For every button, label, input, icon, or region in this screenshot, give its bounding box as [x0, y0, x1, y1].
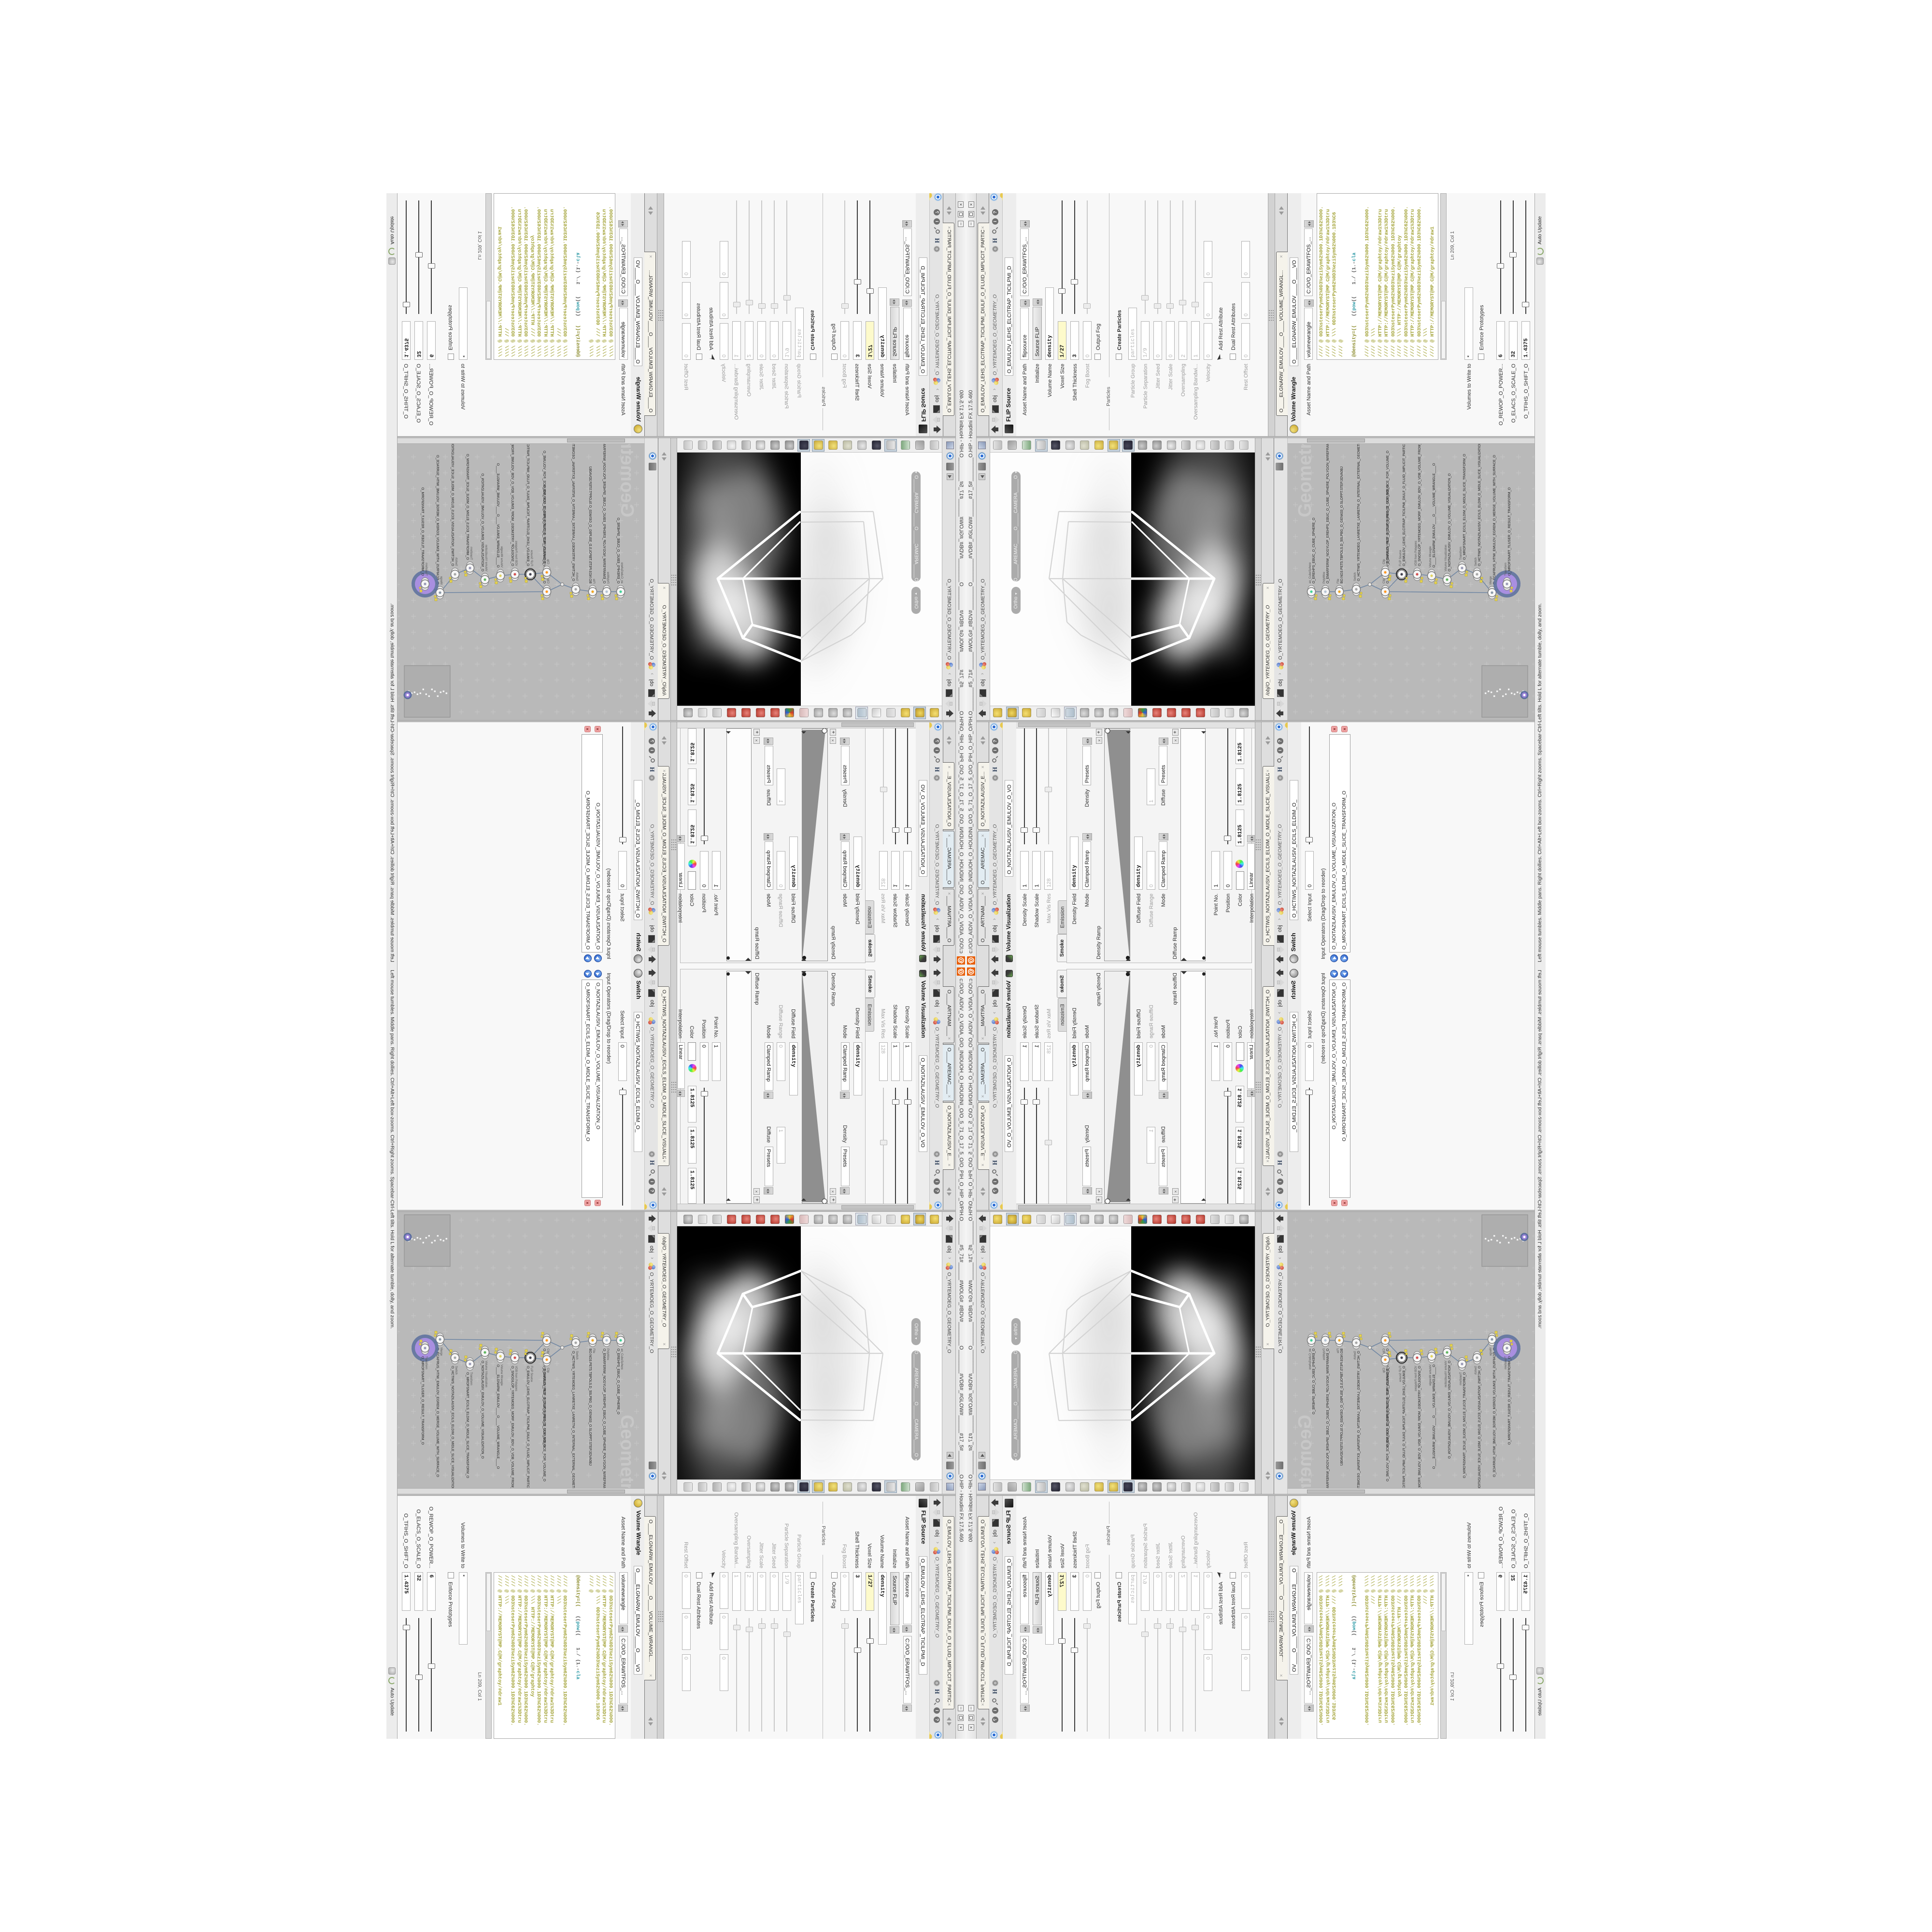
- svg-text:Volume Visualization: Volume Visualization: [484, 545, 487, 571]
- svg-text:Switch: Switch: [1354, 572, 1357, 581]
- svg-text:BO.NO3.PET5.TBPOLS.D_50LPBG_O_: BO.NO3.PET5.TBPOLS.D_50LPBG_O_GEN433_O.S…: [1340, 467, 1344, 583]
- svg-text:O____ELGNARW_EMULOV____O____VO: O____ELGNARW_EMULOV____O____VOLUME_WRANG…: [1433, 463, 1436, 568]
- svg-text:Geometry: Geometry: [617, 438, 637, 517]
- svg-text:O_HCTIWS_NOITAZILAUSIV_ECILS_E: O_HCTIWS_NOITAZILAUSIV_ECILS_ELDIM_O_MID…: [1478, 438, 1481, 566]
- svg-text:Volume Visualization: Volume Visualization: [1445, 1361, 1448, 1387]
- svg-text:FLIP Source: FLIP Source: [530, 550, 533, 566]
- svg-text:O_EMARFERIW_NOGYLOP_EREHPS_EBU: O_EMARFERIW_NOGYLOP_EREHPS_EBUC_O_CUBE_S…: [602, 438, 606, 583]
- svg-text:O_SNOGILOP_YRTEMOEG_MORF_EMULO: O_SNOGILOP_YRTEMOEG_MORF_EMULOV_BDV_O_VD…: [511, 1366, 514, 1494]
- svg-text:O_ECAFRUS_HTIW_EMULOV_EGREM_O_: O_ECAFRUS_HTIW_EMULOV_EGREM_O_MERGE_VOLU…: [1493, 1348, 1496, 1477]
- svg-text:an_CubeSphere: an_CubeSphere: [620, 1349, 623, 1370]
- svg-text:O_MROFSNART_TLUSER_O_RESULT_TR: O_MROFSNART_TLUSER_O_RESULT_TRANSFORM_O: [421, 487, 424, 576]
- svg-text:Geometry: Geometry: [1295, 438, 1315, 517]
- svg-text:Volume Visualization: Volume Visualization: [1445, 545, 1448, 571]
- svg-text:Clip: Clip: [1383, 1368, 1386, 1373]
- svg-text:PolyWire: PolyWire: [606, 1349, 609, 1361]
- svg-text:Merge: Merge: [1490, 1348, 1492, 1356]
- svg-text:PolyWire: PolyWire: [1323, 1349, 1326, 1361]
- svg-text:FLIP Source: FLIP Source: [1399, 550, 1402, 566]
- svg-text:O____ELGNARW_EMULOV____O____VO: O____ELGNARW_EMULOV____O____VOLUME_WRANG…: [496, 1364, 499, 1469]
- svg-text:O_EMARFERIW_NOGYLOP_EREHPS_EBU: O_EMARFERIW_NOGYLOP_EREHPS_EBUC_O_CUBE_S…: [602, 1349, 606, 1494]
- svg-text:O_EMULOV_LEHS_ELCITRAP_TICILPM: O_EMULOV_LEHS_ELCITRAP_TICILPMI_DIULF_O_…: [1403, 1366, 1406, 1494]
- svg-text:O_MROFSNART_TLUSER_O_RESULT_TR: O_MROFSNART_TLUSER_O_RESULT_TRANSFORM_O: [1508, 1356, 1511, 1445]
- svg-text:Switch: Switch: [575, 572, 578, 581]
- svg-text:O_NOITAZILAUSIV_EMULOV_O_VOLUM: O_NOITAZILAUSIV_EMULOV_O_VOLUME_VISUALIZ…: [1448, 1361, 1451, 1459]
- svg-text:PolyWire: PolyWire: [606, 571, 609, 583]
- svg-text:O_HCTIWS_NOITAZILAUSIV_ECILS_E: O_HCTIWS_NOITAZILAUSIV_ECILS_ELDIM_O_MID…: [451, 1366, 454, 1494]
- svg-text:Transform: Transform: [425, 563, 427, 576]
- svg-text:O_EREHPS_EBUC_O_CUBE_SPHERE_O: O_EREHPS_EBUC_O_CUBE_SPHERE_O: [1312, 1349, 1316, 1415]
- svg-text:Clip: Clip: [546, 578, 549, 583]
- svg-text:Transform: Transform: [1505, 563, 1507, 576]
- svg-text:VDB from Polygons: VDB from Polygons: [1415, 1366, 1418, 1391]
- svg-text:File: File: [1337, 579, 1340, 583]
- svg-text:O_EMULOV_LEHS_ELCITRAP_TICILPM: O_EMULOV_LEHS_ELCITRAP_TICILPMI_DIULF_O_…: [1403, 438, 1406, 566]
- svg-text:Transform: Transform: [1460, 1372, 1463, 1385]
- svg-text:O_MROFSNART_ECILS_ELDIM_O_MIDL: O_MROFSNART_ECILS_ELDIM_O_MIDLE_SLICE_TR…: [466, 1372, 469, 1478]
- svg-text:O_EMULOV_LEHS_ELCITRAP_TICILPM: O_EMULOV_LEHS_ELCITRAP_TICILPMI_DIULF_O_…: [526, 1366, 529, 1494]
- svg-text:an_CubeSphere: an_CubeSphere: [1309, 562, 1312, 583]
- svg-text:Switch: Switch: [455, 557, 457, 566]
- svg-text:O_SNOGILOP_YRTEMOEG_MORF_EMULO: O_SNOGILOP_YRTEMOEG_MORF_EMULOV_BDV_O_VD…: [1418, 1366, 1421, 1494]
- svg-text:Geometry: Geometry: [617, 1415, 637, 1494]
- svg-text:Volume Wrangle: Volume Wrangle: [500, 546, 503, 568]
- svg-text:Switch: Switch: [455, 1366, 457, 1375]
- svg-text:Clip: Clip: [1383, 578, 1386, 583]
- svg-text:Merge: Merge: [1490, 576, 1492, 584]
- svg-text:O_EMULOV_ROF_ECRUOS_PILC_O_CLI: O_EMULOV_ROF_ECRUOS_PILC_O_CLIP_SOURCE_F…: [1386, 1368, 1390, 1482]
- svg-text:BO.NO3.PET5.TBPOLS.D_50LPBG_O_: BO.NO3.PET5.TBPOLS.D_50LPBG_O_GEN433_O.S…: [588, 1349, 592, 1465]
- svg-text:Geometry: Geometry: [1295, 1415, 1315, 1494]
- svg-text:O_EMULOV_LEHS_ELCITRAP_TICILPM: O_EMULOV_LEHS_ELCITRAP_TICILPMI_DIULF_O_…: [526, 438, 529, 566]
- svg-text:O_EMULOV_ROF_ECRUOS_PILC_O_CLI: O_EMULOV_ROF_ECRUOS_PILC_O_CLIP_SOURCE_F…: [1386, 450, 1390, 564]
- svg-text:O_EREHPS_EBUC_O_CUBE_SPHERE_O: O_EREHPS_EBUC_O_CUBE_SPHERE_O: [1312, 517, 1316, 583]
- svg-text:Clip: Clip: [546, 559, 549, 564]
- svg-text:Switch: Switch: [1475, 557, 1477, 566]
- svg-text:O_ECAFRUS_HTIW_EMULOV_EGREM_O_: O_ECAFRUS_HTIW_EMULOV_EGREM_O_MERGE_VOLU…: [1493, 455, 1496, 584]
- svg-text:Switch: Switch: [575, 1351, 578, 1360]
- svg-text:O_HCTIWS_NOITAZILAUSIV_ECILS_E: O_HCTIWS_NOITAZILAUSIV_ECILS_ELDIM_O_MID…: [1478, 1366, 1481, 1494]
- svg-text:Transform: Transform: [1460, 547, 1463, 560]
- svg-text:O_MROFSNART_TLUSER_O_RESULT_TR: O_MROFSNART_TLUSER_O_RESULT_TRANSFORM_O: [421, 1356, 424, 1445]
- svg-text:Switch: Switch: [1354, 1351, 1357, 1360]
- svg-text:O____ELGNARW_EMULOV____O____VO: O____ELGNARW_EMULOV____O____VOLUME_WRANG…: [1433, 1364, 1436, 1469]
- svg-text:File: File: [592, 579, 595, 583]
- svg-text:an_CubeSphere: an_CubeSphere: [620, 562, 623, 583]
- svg-text:O_EMARFERIW_NOGYLOP_EREHPS_EBU: O_EMARFERIW_NOGYLOP_EREHPS_EBUC_O_CUBE_S…: [1326, 438, 1330, 583]
- svg-text:VDB from Polygons: VDB from Polygons: [1415, 541, 1418, 566]
- svg-text:Volume Wrangle: Volume Wrangle: [1429, 546, 1432, 568]
- svg-text:File: File: [592, 1349, 595, 1353]
- svg-text:O_MROFSNART_TLUSER_O_RESULT_TR: O_MROFSNART_TLUSER_O_RESULT_TRANSFORM_O: [1508, 487, 1511, 576]
- svg-text:Transform: Transform: [1505, 1356, 1507, 1369]
- svg-text:O_NOITAZILAUSIV_EMULOV_O_VOLUM: O_NOITAZILAUSIV_EMULOV_O_VOLUME_VISUALIZ…: [481, 1361, 484, 1459]
- svg-text:O_EMARFERIW_NOGYLOP_EREHPS_EBU: O_EMARFERIW_NOGYLOP_EREHPS_EBUC_O_CUBE_S…: [1326, 1349, 1330, 1494]
- svg-text:PolyWire: PolyWire: [1323, 571, 1326, 583]
- svg-text:O_HCTIWS_NOITAZILAUSIV_ECILS_E: O_HCTIWS_NOITAZILAUSIV_ECILS_ELDIM_O_MID…: [451, 438, 454, 566]
- svg-text:O____ELGNARW_EMULOV____O____VO: O____ELGNARW_EMULOV____O____VOLUME_WRANG…: [496, 463, 499, 568]
- svg-text:BO.NO3.PET5.TBPOLS.D_50LPBG_O_: BO.NO3.PET5.TBPOLS.D_50LPBG_O_GEN433_O.S…: [1340, 1349, 1344, 1465]
- svg-text:O_NOITAZILAUSIV_EMULOV_O_VOLUM: O_NOITAZILAUSIV_EMULOV_O_VOLUME_VISUALIZ…: [1448, 473, 1451, 571]
- svg-text:O_EREHPS_EBUC_O_CUBE_SPHERE_O: O_EREHPS_EBUC_O_CUBE_SPHERE_O: [616, 517, 620, 583]
- svg-text:Volume Wrangle: Volume Wrangle: [1429, 1364, 1432, 1386]
- svg-text:O_HCTIWS_YRTEMOEG_LANRETXE_LAN: O_HCTIWS_YRTEMOEG_LANRETXE_LANRETNI_O_IN…: [1357, 438, 1361, 581]
- svg-text:VDB from Polygons: VDB from Polygons: [514, 1366, 517, 1391]
- svg-text:O_EREHPS_EBUC_O_CUBE_SPHERE_O: O_EREHPS_EBUC_O_CUBE_SPHERE_O: [616, 1349, 620, 1415]
- svg-text:Switch: Switch: [1475, 1366, 1477, 1375]
- svg-text:Volume Wrangle: Volume Wrangle: [500, 1364, 503, 1386]
- svg-text:Transform: Transform: [469, 1372, 472, 1385]
- svg-text:O_NOITAZILAUSIV_EMULOV_O_VOLUM: O_NOITAZILAUSIV_EMULOV_O_VOLUME_VISUALIZ…: [481, 473, 484, 571]
- svg-text:O_HCTIWS_YRTEMOEG_LANRETXE_LAN: O_HCTIWS_YRTEMOEG_LANRETXE_LANRETNI_O_IN…: [571, 438, 575, 581]
- svg-text:O_HCTIWS_YRTEMOEG_LANRETXE_LAN: O_HCTIWS_YRTEMOEG_LANRETXE_LANRETNI_O_IN…: [571, 1351, 575, 1494]
- svg-text:FLIP Source: FLIP Source: [1399, 1366, 1402, 1382]
- svg-text:an_CubeSphere: an_CubeSphere: [1309, 1349, 1312, 1370]
- svg-text:O_MROFSNART_ECILS_ELDIM_O_MIDL: O_MROFSNART_ECILS_ELDIM_O_MIDLE_SLICE_TR…: [466, 454, 469, 560]
- svg-text:O_SNOGILOP_YRTEMOEG_MORF_EMULO: O_SNOGILOP_YRTEMOEG_MORF_EMULOV_BDV_O_VD…: [511, 438, 514, 566]
- svg-text:File: File: [1337, 1349, 1340, 1353]
- svg-text:Transform: Transform: [469, 547, 472, 560]
- svg-text:Merge: Merge: [440, 1348, 442, 1356]
- svg-text:Clip: Clip: [1383, 559, 1386, 564]
- svg-text:O_ECAFRUS_HTIW_EMULOV_EGREM_O_: O_ECAFRUS_HTIW_EMULOV_EGREM_O_MERGE_VOLU…: [436, 1348, 439, 1477]
- svg-text:Clip: Clip: [1383, 1349, 1386, 1354]
- svg-text:O_MROFSNART_ECILS_ELDIM_O_MIDL: O_MROFSNART_ECILS_ELDIM_O_MIDLE_SLICE_TR…: [1463, 454, 1466, 560]
- svg-text:O_EMULOV_ROF_ECRUOS_PILC_O_CLI: O_EMULOV_ROF_ECRUOS_PILC_O_CLIP_SOURCE_F…: [542, 1368, 546, 1482]
- svg-text:VDB from Polygons: VDB from Polygons: [514, 541, 517, 566]
- svg-text:Merge: Merge: [440, 576, 442, 584]
- svg-text:O_HCTIWS_YRTEMOEG_LANRETXE_LAN: O_HCTIWS_YRTEMOEG_LANRETXE_LANRETNI_O_IN…: [1357, 1351, 1361, 1494]
- svg-text:O_EMULOV_ROF_ECRUOS_PILC_O_CLI: O_EMULOV_ROF_ECRUOS_PILC_O_CLIP_SOURCE_F…: [542, 450, 546, 564]
- svg-text:O_ECAFRUS_HTIW_EMULOV_EGREM_O_: O_ECAFRUS_HTIW_EMULOV_EGREM_O_MERGE_VOLU…: [436, 455, 439, 584]
- svg-text:Clip: Clip: [546, 1368, 549, 1373]
- svg-text:BO.NO3.PET5.TBPOLS.D_50LPBG_O_: BO.NO3.PET5.TBPOLS.D_50LPBG_O_GEN433_O.S…: [588, 467, 592, 583]
- svg-text:Transform: Transform: [425, 1356, 427, 1369]
- svg-text:O_MROFSNART_ECILS_ELDIM_O_MIDL: O_MROFSNART_ECILS_ELDIM_O_MIDLE_SLICE_TR…: [1463, 1372, 1466, 1478]
- svg-text:Volume Visualization: Volume Visualization: [484, 1361, 487, 1387]
- svg-text:O_SNOGILOP_YRTEMOEG_MORF_EMULO: O_SNOGILOP_YRTEMOEG_MORF_EMULOV_BDV_O_VD…: [1418, 438, 1421, 566]
- svg-text:FLIP Source: FLIP Source: [530, 1366, 533, 1382]
- svg-text:Clip: Clip: [546, 1349, 549, 1354]
